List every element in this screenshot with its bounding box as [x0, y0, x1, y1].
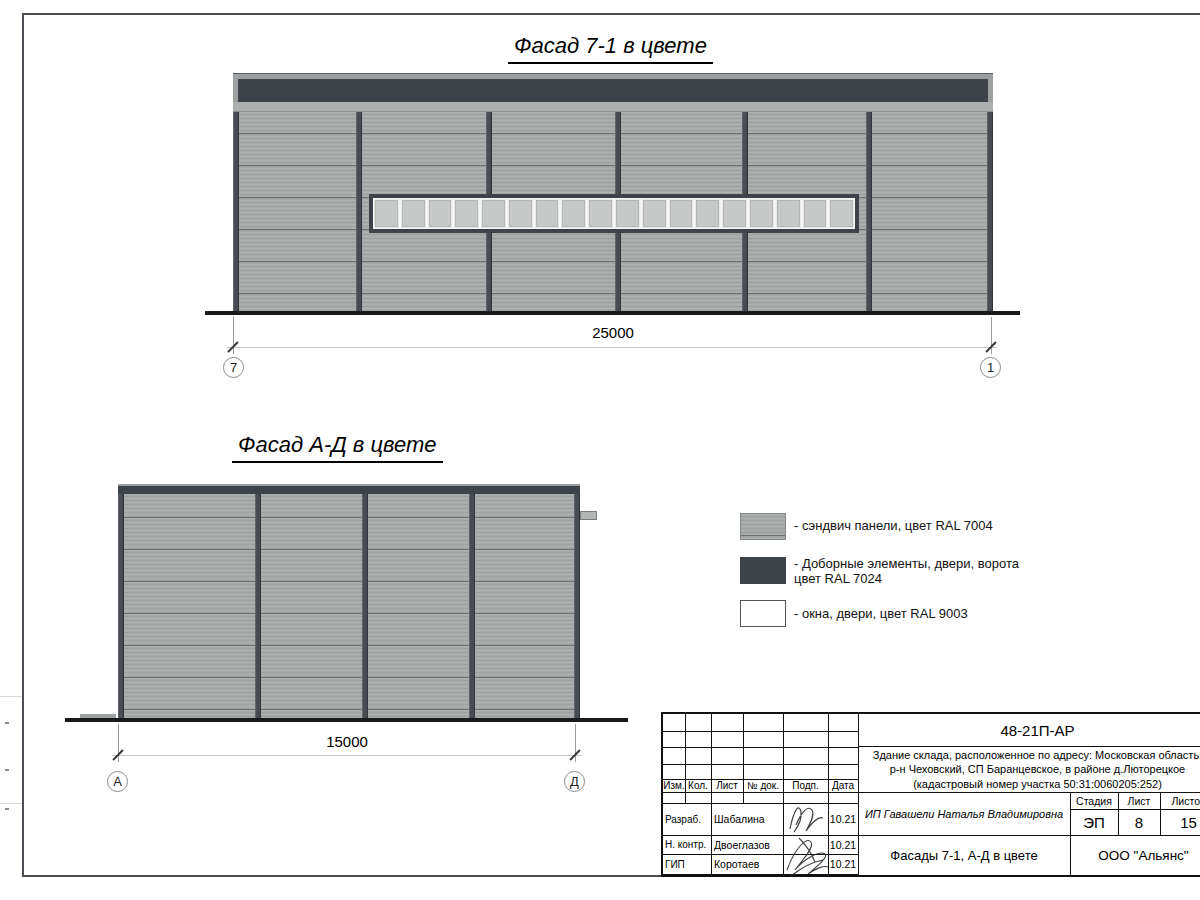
window-pane [588, 199, 613, 228]
facade2-mullion [469, 494, 475, 720]
title-block: Изм. Кол. Лист № док. Подп. Дата Разраб.… [661, 712, 1200, 877]
facade1-extension-line-left [233, 317, 234, 354]
facade2-mullion [255, 494, 261, 720]
window-pane [374, 199, 399, 228]
description-line3: (кадастровый номер участка 50:31:0060205… [913, 777, 1162, 792]
axis-label: Д [570, 774, 579, 789]
legend-swatch-windows [740, 600, 786, 627]
facade1-extension-line-right [991, 317, 992, 354]
facade2-dimension-value: 15000 [297, 733, 397, 750]
stamp-role-nkontr: Н. контр. [665, 835, 709, 854]
window-pane [669, 199, 694, 228]
window-pane [749, 199, 774, 228]
legend-label-panels: - сэндвич панели, цвет RAL 7004 [794, 518, 993, 533]
stamp-name-razrab: Шабалина [714, 803, 782, 835]
stamp-col-doc: № док. [743, 779, 783, 792]
stamp-role-razrab: Разраб. [665, 803, 709, 835]
stamp-col-data: Дата [828, 779, 858, 792]
axis-label: 1 [987, 360, 994, 375]
facade1-ground-line [205, 311, 1020, 315]
stamp-stage-value: ЭП [1070, 809, 1118, 835]
stamp-name-gip: Коротаев [714, 854, 782, 874]
window-pane [454, 199, 479, 228]
facade1-mullion [866, 112, 872, 315]
facade2-extension-line-left [118, 724, 119, 762]
stamp-name-nkontr: Двоеглазов [714, 835, 782, 854]
stamp-sheets-label: Листов [1160, 792, 1200, 809]
facade1-edge-post-right [987, 112, 993, 315]
facade1-window-band-interior [373, 198, 855, 229]
facade2-parapet-band [118, 486, 580, 494]
stamp-project-description: Здание склада, расположенное по адресу: … [858, 747, 1200, 792]
facade2-axis-marker-d: Д [564, 771, 585, 792]
window-pane [561, 199, 586, 228]
stamp-col-kol: Кол. [685, 779, 711, 792]
axis-label: 7 [230, 360, 237, 375]
legend-swatch-panels [740, 513, 786, 540]
stamp-role-gip: ГИП [665, 854, 709, 874]
stamp-date-razrab: 10.21 [828, 803, 858, 835]
facade2-edge-post-right [574, 494, 580, 720]
stamp-sheet-label: Лист [1118, 792, 1160, 809]
stamp-company: ООО "Альянс" [1070, 835, 1200, 875]
stamp-sheet-value: 8 [1118, 809, 1160, 835]
legend-label-dark-elements: - Доборные элементы, двери, ворота цвет … [794, 556, 1019, 586]
description-line2: р-н Чеховский, СП Баранцевское, в районе… [890, 762, 1186, 777]
window-pane [401, 199, 426, 228]
stamp-date-gip: 10.21 [828, 854, 858, 874]
facade2-extension-line-right [575, 724, 576, 762]
window-pane [803, 199, 828, 228]
margin-mark [5, 769, 9, 771]
frame-top [22, 13, 1200, 15]
legend-label-line2: цвет RAL 7024 [794, 571, 882, 586]
stamp-col-list: Лист [711, 779, 743, 792]
facade2-gutter-outlet [580, 511, 597, 520]
facade2-axis-marker-a: А [107, 771, 128, 792]
legend-label-line1: - Доборные элементы, двери, ворота [794, 556, 1019, 571]
margin-line [0, 696, 22, 697]
facade1-edge-post-left [233, 112, 239, 315]
facade1-dimension-value: 25000 [563, 324, 663, 341]
margin-mark [5, 808, 9, 810]
stamp-col-izm: Изм. [663, 779, 685, 792]
window-pane [642, 199, 667, 228]
facade1-dimension-line [227, 347, 997, 348]
facade2-mullion [362, 494, 368, 720]
facade-a-d-drawing [118, 484, 580, 720]
window-pane [722, 199, 747, 228]
signature-nkontr-gip [781, 832, 831, 880]
legend-swatch-dark-elements [740, 557, 786, 584]
facade2-title: Фасад А-Д в цвете [232, 432, 443, 463]
stamp-date-nkontr: 10.21 [828, 835, 858, 854]
drawing-sheet: Фасад 7-1 в цвете Фасад А-Д в цвете 250 [0, 0, 1200, 900]
axis-label: А [113, 774, 122, 789]
facade1-mullion [356, 112, 362, 315]
margin-mark [5, 722, 9, 724]
window-pane [481, 199, 506, 228]
facade1-axis-marker-7: 7 [223, 357, 244, 378]
facade1-window-band [369, 194, 859, 233]
stamp-client: ИП Гавашели Наталья Владимировна [858, 792, 1070, 835]
window-pane [776, 199, 801, 228]
facade2-dimension-line [112, 755, 582, 756]
window-pane [535, 199, 560, 228]
stamp-doc-title: Фасады 7-1, А-Д в цвете [858, 835, 1070, 875]
stamp-doc-code: 48-21П-АР [858, 714, 1200, 746]
window-pane [428, 199, 453, 228]
stamp-stage-label: Стадия [1070, 792, 1118, 809]
window-pane [615, 199, 640, 228]
window-pane [829, 199, 854, 228]
frame-left [22, 13, 24, 877]
facade-7-1-drawing [233, 73, 993, 315]
facade2-ground-line [65, 718, 628, 722]
facade1-axis-marker-1: 1 [980, 357, 1001, 378]
description-line1: Здание склада, расположенное по адресу: … [873, 748, 1200, 763]
facade1-upper-strip [233, 102, 993, 112]
facade1-title: Фасад 7-1 в цвете [508, 33, 713, 64]
facade2-panel-field [118, 494, 580, 720]
stamp-col-podp: Подп. [783, 779, 828, 792]
facade2-edge-post-left [118, 494, 124, 720]
legend-label-windows: - окна, двери, цвет RAL 9003 [794, 606, 968, 621]
margin-line [0, 803, 22, 804]
window-pane [508, 199, 533, 228]
stamp-sheets-value: 15 [1160, 809, 1200, 835]
window-pane [695, 199, 720, 228]
facade1-parapet-band [238, 79, 988, 102]
